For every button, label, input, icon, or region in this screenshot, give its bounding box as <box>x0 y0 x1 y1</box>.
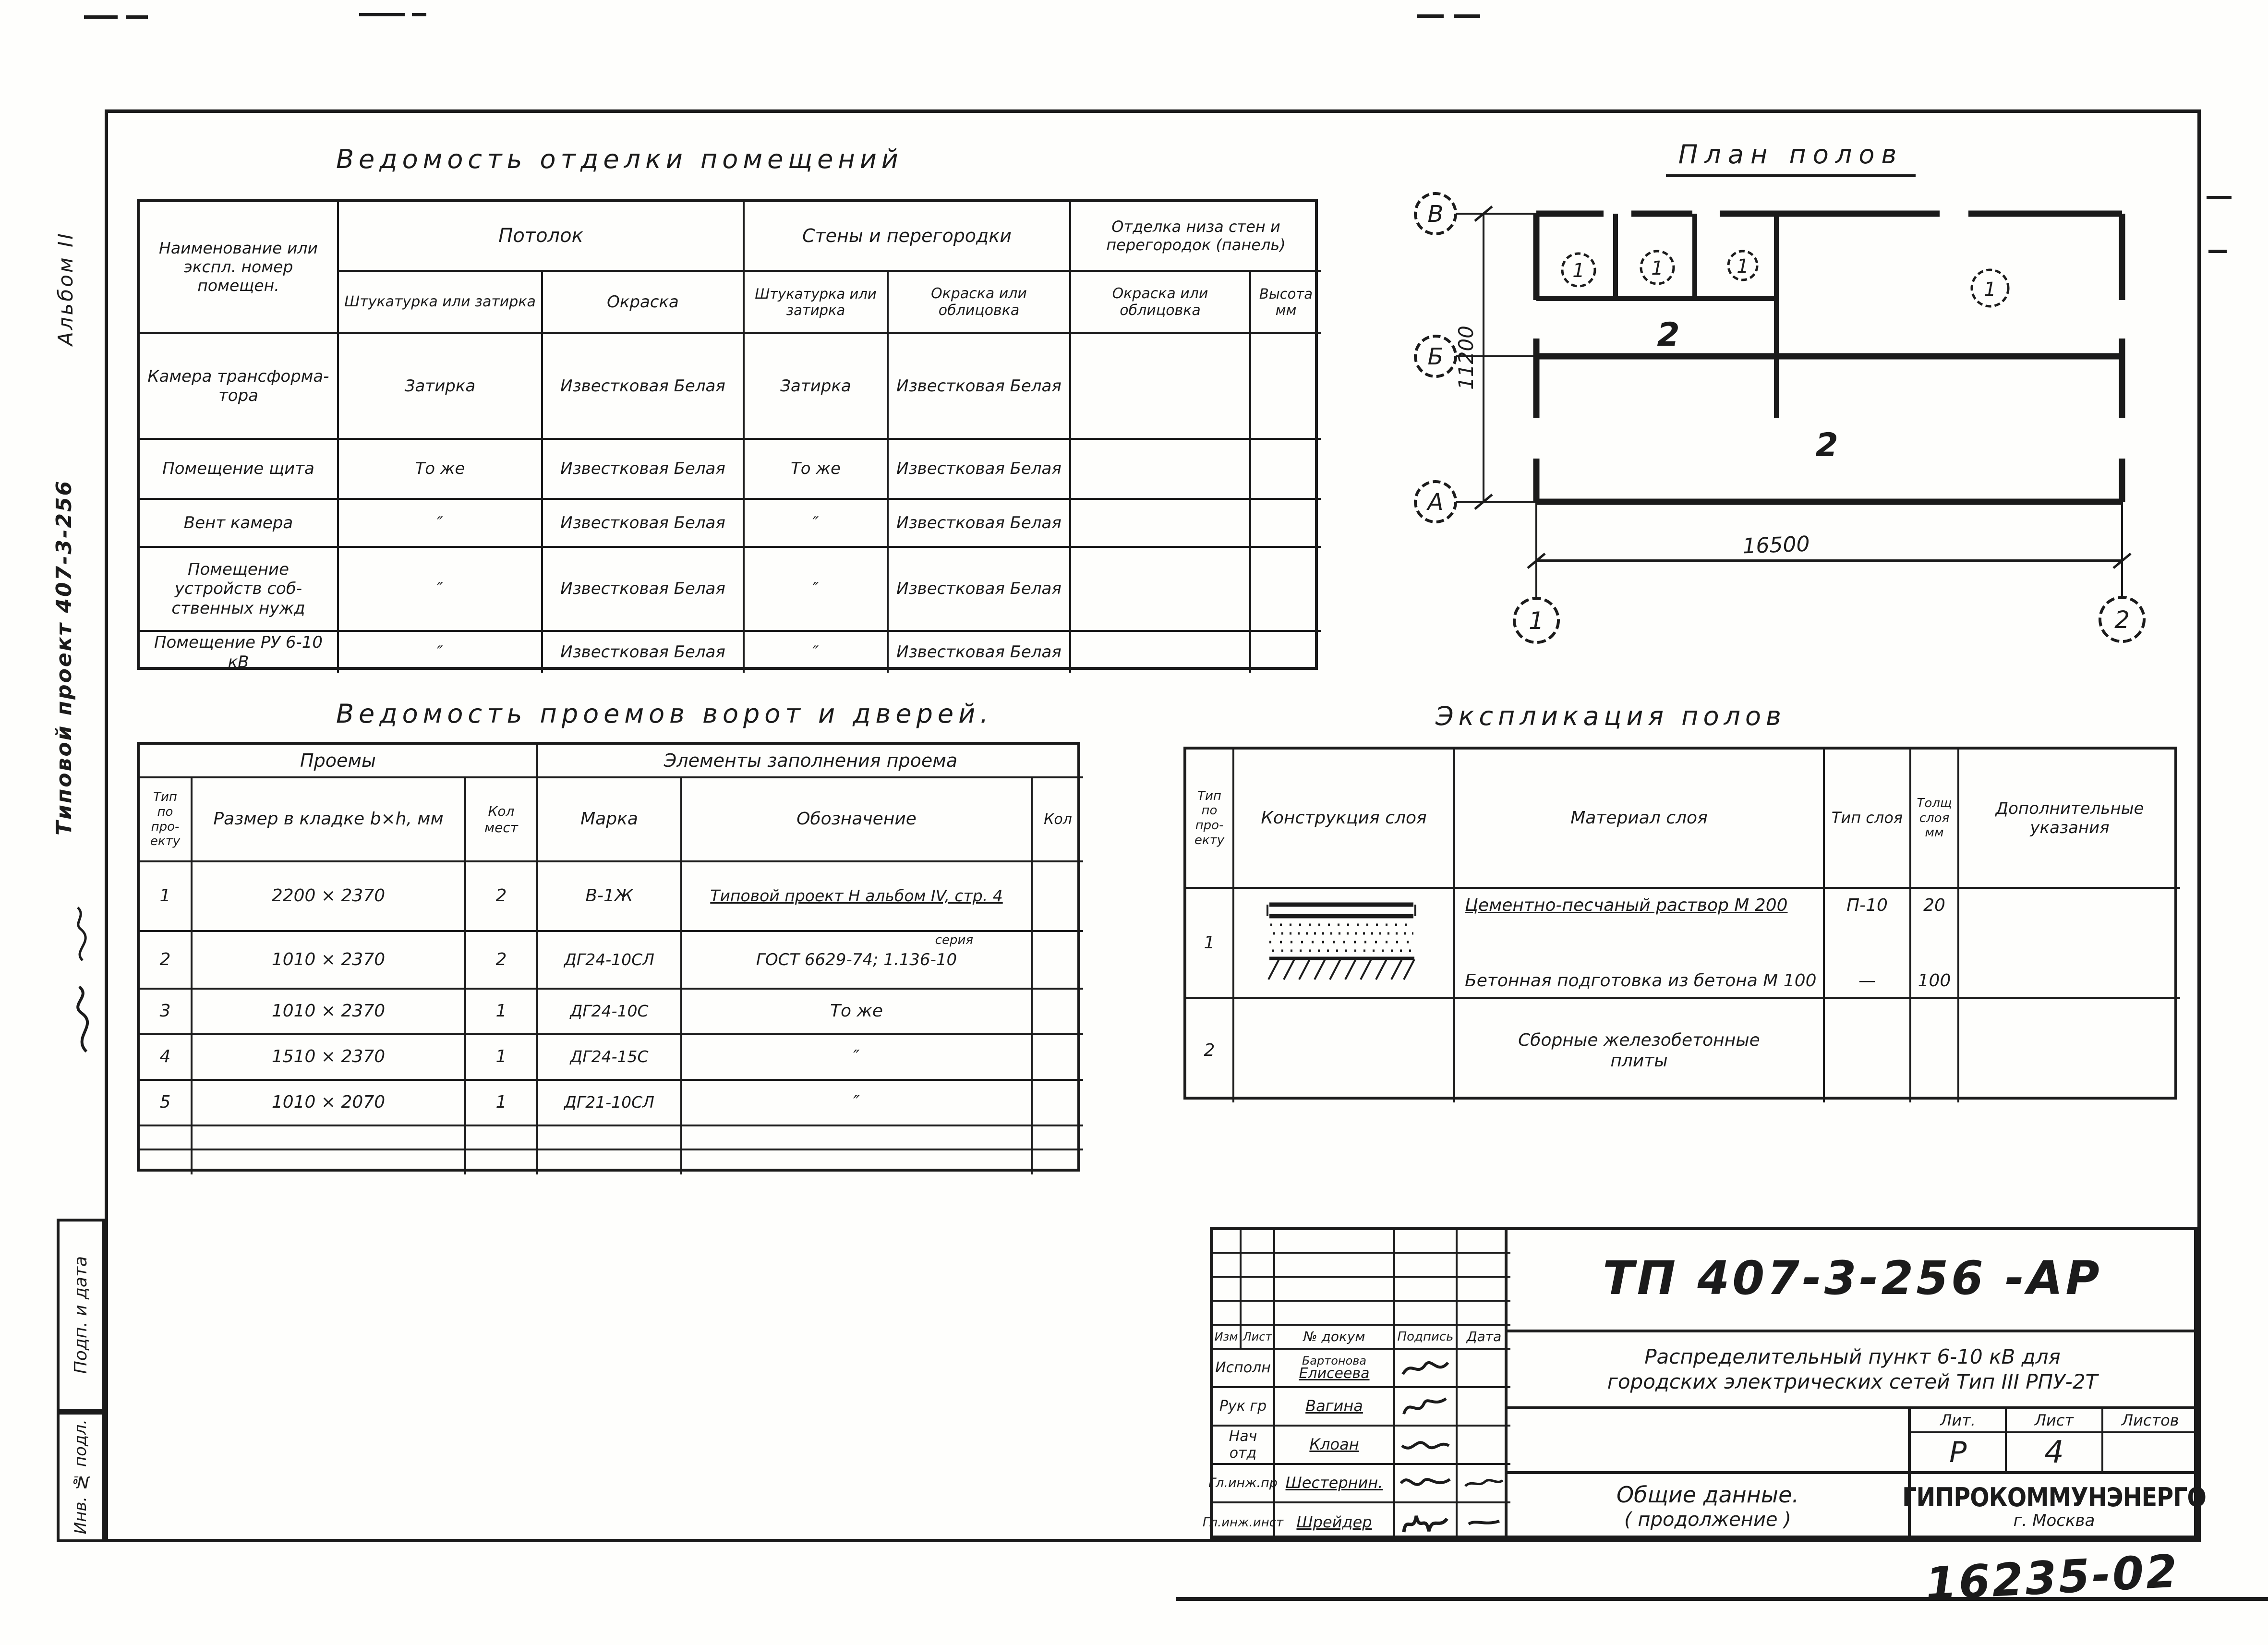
table-cell <box>1071 632 1251 673</box>
paper-edge-line <box>1176 1597 2268 1601</box>
lit-label-cell: Лит. <box>1911 1409 2007 1433</box>
empty-cell <box>466 1150 538 1174</box>
margin-box-sign-date-label: Подп. и дата <box>71 1256 91 1374</box>
date-mark <box>1465 1515 1503 1530</box>
fold-mark <box>126 15 148 19</box>
staff-name: Шрейдер <box>1275 1503 1395 1542</box>
empty-cell <box>193 1150 466 1174</box>
empty-cell <box>1275 1254 1395 1278</box>
staff-role: Исполн <box>1213 1350 1275 1388</box>
table-cell <box>1251 334 1321 440</box>
finish-table-title: Ведомость отделки помещений <box>336 144 903 174</box>
empty-cell <box>1242 1254 1275 1278</box>
floors-col-thickness: Толщ слоя мм <box>1911 750 1959 889</box>
table-cell <box>1251 440 1321 500</box>
doc-code-cell: ТП 407-3-256 -АР <box>1508 1227 2197 1332</box>
table-cell: Типовой проект Н альбом IV, стр. 4 <box>682 862 1033 932</box>
table-cell: ″ <box>339 500 543 548</box>
openings-col-mark: Марка <box>538 778 682 862</box>
sheets-value-cell <box>2103 1433 2197 1474</box>
empty-cell <box>1395 1278 1458 1302</box>
fold-mark <box>359 13 405 16</box>
empty-cell <box>538 1126 682 1150</box>
floors-col-construction: Конструкция слоя <box>1234 750 1455 889</box>
empty-cell <box>1395 1230 1458 1254</box>
table-cell: Помещение РУ 6-10 кВ <box>140 632 339 673</box>
table-cell: Помещение щита <box>140 440 339 500</box>
sheet-label: Лист <box>2035 1411 2074 1429</box>
openings-col-qty: Кол <box>1033 778 1083 862</box>
table-cell <box>1825 999 1911 1102</box>
zone-label: 2 <box>1815 426 1838 464</box>
table-cell <box>1071 548 1251 632</box>
table-cell: 1 <box>140 862 193 932</box>
doc-code: ТП 407-3-256 -АР <box>1603 1251 2102 1305</box>
empty-cell <box>1242 1278 1275 1302</box>
table-cell <box>1033 1081 1083 1126</box>
lit-value: Р <box>1949 1436 1966 1469</box>
table-cell: ″ <box>339 632 543 673</box>
fold-mark <box>412 13 426 16</box>
table-cell: ДГ24-10С <box>538 990 682 1035</box>
staff-date <box>1458 1388 1510 1427</box>
empty-cell <box>1033 1150 1083 1174</box>
table-cell: ″ <box>682 1081 1033 1126</box>
album-note: Альбом II <box>54 144 77 346</box>
inventory-number-handwritten: 16235-02 <box>1924 1545 2181 1611</box>
lit-header-row: Лит. Лист Листов <box>1911 1409 2197 1433</box>
table-cell: 1010 × 2070 <box>193 1081 466 1126</box>
margin-box-sign-date: Подп. и дата <box>57 1219 105 1412</box>
empty-cell <box>1395 1254 1458 1278</box>
empty-cell <box>1242 1302 1275 1326</box>
finish-sub-paint-panel: Окраска или облицовка <box>1071 272 1251 334</box>
openings-group-openings: Проемы <box>140 745 538 778</box>
floors-col-layer-type: Тип слоя <box>1825 750 1911 889</box>
table-cell: 2 <box>466 932 538 990</box>
table-cell <box>1959 889 2180 999</box>
staff-signature <box>1395 1427 1458 1465</box>
project-title-cell: Распределительный пункт 6-10 кВ для горо… <box>1508 1332 2197 1409</box>
table-cell: Известковая Белая <box>543 334 745 440</box>
table-cell: То же <box>745 440 889 500</box>
gost-note: серия <box>935 933 973 948</box>
table-cell: Известковая Белая <box>543 548 745 632</box>
openings-group-fill: Элементы заполнения проема <box>538 745 1083 778</box>
sheets-label: Листов <box>2122 1411 2179 1429</box>
thickness-a: 20 <box>1923 895 1945 915</box>
gost-text: ГОСТ 6629-74; 1.136-10 <box>756 950 957 969</box>
staff-name: Вагина <box>1275 1388 1395 1427</box>
empty-cell <box>1213 1278 1242 1302</box>
table-cell: 1 <box>466 1035 538 1081</box>
table-cell: 4 <box>140 1035 193 1081</box>
floor-construction-sketch-cell <box>1234 889 1455 999</box>
staff-name: Клоан <box>1275 1427 1395 1465</box>
table-cell: Помещение устройств соб­ственных нужд <box>140 548 339 632</box>
floor-materials-cell: Цементно-песчаный раствор М 200 Бетонная… <box>1455 889 1825 999</box>
floor-mark: 1 <box>1651 257 1663 279</box>
table-cell <box>1911 999 1959 1102</box>
axis-label-a: А <box>1426 489 1444 516</box>
empty-cell <box>1458 1230 1510 1254</box>
table-cell: ДГ21-10СЛ <box>538 1081 682 1126</box>
table-cell: 1 <box>466 1081 538 1126</box>
margin-box-inventory-label: Инв. № подл. <box>71 1419 90 1534</box>
table-cell: Камера трансформа­тора <box>140 334 339 440</box>
staff-date <box>1458 1465 1510 1503</box>
signature-mark <box>1399 1356 1452 1380</box>
staff-role: Гл.инж.инст <box>1213 1503 1275 1542</box>
openings-table-title: Ведомость проемов ворот и дверей. <box>336 699 993 729</box>
table-cell <box>1071 440 1251 500</box>
table-cell: ДГ24-10СЛ <box>538 932 682 990</box>
rev-header-data: Дата <box>1458 1326 1510 1350</box>
signature-mark <box>1399 1470 1452 1497</box>
table-cell <box>1959 999 2180 1102</box>
table-cell: ″ <box>745 548 889 632</box>
table-cell: 3 <box>140 990 193 1035</box>
subject-line2: ( продолжение ) <box>1624 1508 1791 1531</box>
staff-date <box>1458 1427 1510 1465</box>
dim-horizontal: 16500 <box>1742 532 1810 559</box>
signature-mark <box>1399 1431 1452 1458</box>
empty-cell <box>682 1126 1033 1150</box>
empty-cell <box>1458 1278 1510 1302</box>
empty-cell <box>140 1126 193 1150</box>
table-cell: Затирка <box>339 334 543 440</box>
sheet-value-cell: 4 <box>2007 1433 2103 1474</box>
stage-empty-cell <box>1508 1409 1911 1474</box>
axis-label-2: 2 <box>2114 606 2130 634</box>
floor-mark: 1 <box>1984 278 1996 301</box>
empty-cell <box>538 1150 682 1174</box>
empty-cell <box>1275 1302 1395 1326</box>
staff-signature <box>1395 1503 1458 1542</box>
table-cell <box>1251 500 1321 548</box>
table-cell: 2 <box>466 862 538 932</box>
layer-type-b: — <box>1858 971 1876 991</box>
margin-box-inventory: Инв. № подл. <box>57 1412 105 1542</box>
finish-group-panel: Отделка низа стен и перегородок (панель) <box>1071 202 1321 272</box>
openings-col-places: Кол мест <box>466 778 538 862</box>
table-cell: Известковая Белая <box>889 632 1071 673</box>
fold-mark <box>84 15 118 19</box>
empty-cell <box>1458 1254 1510 1278</box>
empty-cell <box>1458 1302 1510 1326</box>
empty-cell <box>1234 999 1455 1102</box>
floor-thickness-cell: 20 100 <box>1911 889 1959 999</box>
table-cell: ″ <box>682 1035 1033 1081</box>
empty-cell <box>193 1126 466 1150</box>
table-cell: ″ <box>745 632 889 673</box>
table-cell <box>1251 632 1321 673</box>
finish-sub-paint-ceiling: Окраска <box>543 272 745 334</box>
table-cell: То же <box>682 990 1033 1035</box>
table-cell: 2200 × 2370 <box>193 862 466 932</box>
finish-group-ceiling: Потолок <box>339 202 745 272</box>
table-cell <box>1033 932 1083 990</box>
axis-label-1: 1 <box>1529 607 1544 635</box>
empty-cell <box>1275 1278 1395 1302</box>
openings-col-size: Размер в кладке b×h, мм <box>193 778 466 862</box>
table-cell: ″ <box>339 548 543 632</box>
subject-line1: Общие данные. <box>1617 1482 1799 1508</box>
table-cell: ДГ24-15С <box>538 1035 682 1081</box>
finish-sub-plaster-walls: Штукатурка или затирка <box>745 272 889 334</box>
date-mark <box>1462 1474 1506 1493</box>
table-cell: Известковая Белая <box>889 548 1071 632</box>
lit-values-row: Р 4 <box>1911 1433 2197 1474</box>
table-cell: 2 <box>140 932 193 990</box>
signature-mark <box>1399 1393 1452 1420</box>
staff-role: Нач отд <box>1213 1427 1275 1465</box>
table-cell: 1 <box>466 990 538 1035</box>
staff-signature <box>1395 1388 1458 1427</box>
table-cell: Известковая Белая <box>889 500 1071 548</box>
floor-mark: 1 <box>1572 260 1584 282</box>
table-cell: Известковая Белая <box>889 334 1071 440</box>
staff-name: Шестернин. <box>1275 1465 1395 1503</box>
rev-header-ndokum: № докум <box>1275 1326 1395 1350</box>
project-title-line2: городских электрических сетей Тип III РП… <box>1607 1369 2098 1395</box>
axis-label-v: В <box>1428 201 1444 228</box>
empty-cell <box>1213 1254 1242 1278</box>
signature-mark <box>1399 1508 1452 1537</box>
openings-col-designation: Обозначение <box>682 778 1033 862</box>
floors-table-title: Экспликация полов <box>1436 701 1786 731</box>
gost-cell: серия ГОСТ 6629-74; 1.136-10 <box>682 932 1033 990</box>
project-title-line1: Распределительный пункт 6-10 кВ для <box>1644 1344 2061 1370</box>
subject-cell: Общие данные. ( продолжение ) <box>1508 1474 1911 1539</box>
floors-col-notes: Дополнительные указания <box>1959 750 2180 889</box>
table-cell: Затирка <box>745 334 889 440</box>
floors-col-material: Материал слоя <box>1455 750 1825 889</box>
table-cell: 1 <box>1186 889 1234 999</box>
axis-label-b: Б <box>1428 343 1444 370</box>
empty-cell <box>1395 1302 1458 1326</box>
openings-table: Проемы Элементы заполнения проема Тип по… <box>137 742 1080 1172</box>
staff-name-main: Елисеева <box>1299 1367 1369 1381</box>
staff-date <box>1458 1503 1510 1542</box>
lit-value-cell: Р <box>1911 1433 2007 1474</box>
dim-vertical: 11200 <box>1454 326 1478 390</box>
finish-table: Наименование или экспл. номер помещен. П… <box>137 199 1318 670</box>
table-cell: 1510 × 2370 <box>193 1035 466 1081</box>
rev-header-list: Лист <box>1242 1326 1275 1350</box>
staff-date <box>1458 1350 1510 1388</box>
fold-mark <box>1454 14 1480 18</box>
finish-sub-height: Высота мм <box>1251 272 1321 334</box>
table-cell: В-1Ж <box>538 862 682 932</box>
empty-cell <box>1242 1230 1275 1254</box>
lit-label: Лит. <box>1940 1411 1976 1429</box>
staff-name: Бартонова Елисеева <box>1275 1350 1395 1388</box>
revision-table: Изм Лист № докум Подпись Дата Исполн Бар… <box>1210 1227 1508 1539</box>
empty-cell <box>140 1150 193 1174</box>
sheets-label-cell: Листов <box>2103 1409 2197 1433</box>
floor-plan: В Б А 11200 <box>1383 125 2228 691</box>
margin-signature-squiggle <box>53 903 106 1061</box>
table-cell: Известковая Белая <box>543 440 745 500</box>
table-cell <box>1071 500 1251 548</box>
empty-cell <box>1275 1230 1395 1254</box>
material-layer-a: Цементно-песчаный раствор М 200 <box>1465 895 1788 915</box>
table-cell: Известковая Белая <box>543 500 745 548</box>
sheet-label-cell: Лист <box>2007 1409 2103 1433</box>
sheet-value: 4 <box>2044 1435 2064 1470</box>
table-cell: 1010 × 2370 <box>193 990 466 1035</box>
empty-cell <box>1213 1302 1242 1326</box>
floors-table: Тип по про­екту Конструкция слоя Материа… <box>1183 747 2177 1100</box>
staff-role: Рук гр <box>1213 1388 1275 1427</box>
table-cell <box>1033 862 1083 932</box>
layer-type-a: П-10 <box>1846 895 1888 915</box>
floor-layer-type-cell: П-10 — <box>1825 889 1911 999</box>
finish-sub-plaster-ceiling: Штукатурка или затирка <box>339 272 543 334</box>
floors-col-type: Тип по про­екту <box>1186 750 1234 889</box>
finish-group-walls: Стены и перегородки <box>745 202 1071 272</box>
table-cell: Вент камера <box>140 500 339 548</box>
table-cell: 5 <box>140 1081 193 1126</box>
staff-signature <box>1395 1465 1458 1503</box>
openings-col-type: Тип по про­екту <box>140 778 193 862</box>
table-cell: Сборные железобетонные плиты <box>1455 999 1825 1102</box>
empty-cell <box>1033 1126 1083 1150</box>
drawing-sheet: Альбом II Типовой проект 407-3-256 Подп.… <box>0 0 2268 1645</box>
table-cell <box>1033 990 1083 1035</box>
project-note: Типовой проект 407-3-256 <box>52 471 76 835</box>
rev-header-izm: Изм <box>1213 1326 1242 1350</box>
organization-name: ГИПРОКОММУНЭНЕРГО <box>1902 1483 2206 1512</box>
empty-cell <box>682 1150 1033 1174</box>
rev-header-podpis: Подпись <box>1395 1326 1458 1350</box>
table-cell: Известковая Белая <box>889 440 1071 500</box>
staff-signature <box>1395 1350 1458 1388</box>
thickness-b: 100 <box>1918 971 1951 991</box>
table-cell <box>1071 334 1251 440</box>
fold-mark <box>1417 14 1444 18</box>
table-cell: 2 <box>1186 999 1234 1102</box>
organization-cell: ГИПРОКОММУНЭНЕРГО г. Москва <box>1911 1474 2197 1539</box>
organization-city: г. Москва <box>2014 1512 2095 1530</box>
table-cell: ″ <box>745 500 889 548</box>
material-layer-b: Бетонная подготовка из бетона М 100 <box>1465 971 1817 991</box>
zone-label: 2 <box>1657 316 1679 354</box>
table-cell <box>1251 548 1321 632</box>
empty-cell <box>466 1126 538 1150</box>
table-cell: То же <box>339 440 543 500</box>
finish-col-name: Наименование или экспл. номер помещен. <box>140 202 339 334</box>
table-cell <box>1033 1035 1083 1081</box>
table-cell: 1010 × 2370 <box>193 932 466 990</box>
floor-mark: 1 <box>1737 255 1749 278</box>
floor-construction-sketch <box>1265 900 1423 986</box>
empty-cell <box>1213 1230 1242 1254</box>
finish-sub-paint-walls: Окраска или облицовка <box>889 272 1071 334</box>
staff-role: Гл.инж.пр <box>1213 1465 1275 1503</box>
table-cell: Известковая Белая <box>543 632 745 673</box>
